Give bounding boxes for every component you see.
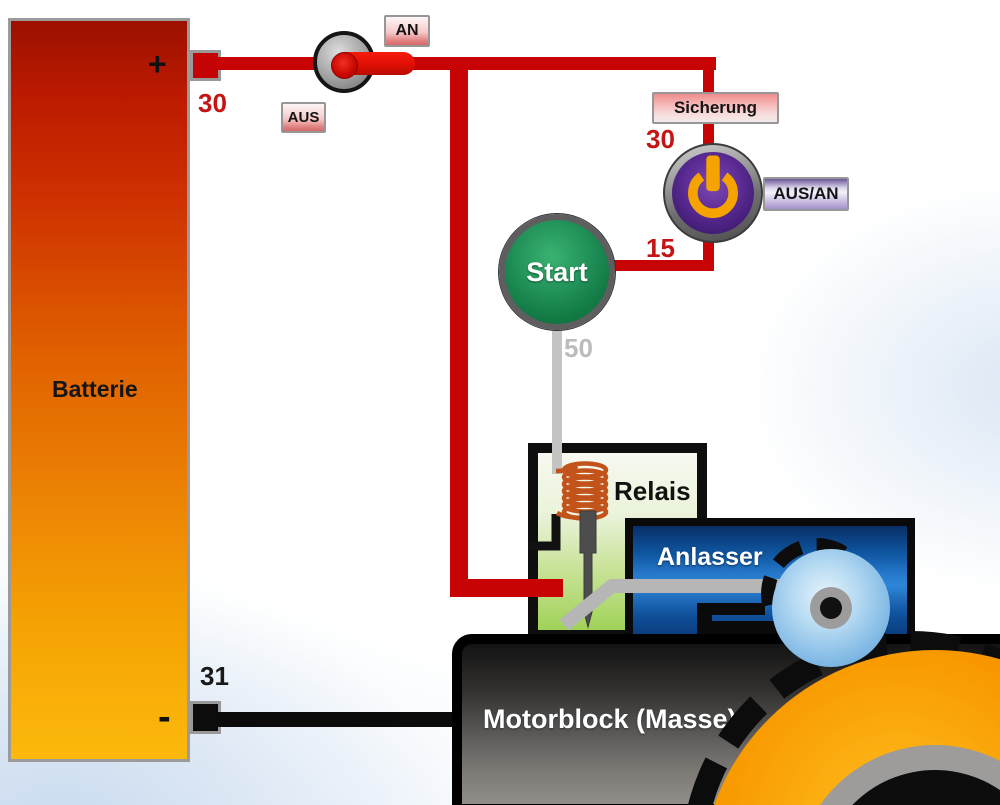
terminal-50: 50 [564,335,593,361]
switch-pivot [331,52,358,79]
start-button-label: Start [526,257,588,288]
terminal-31: 31 [200,663,229,689]
battery-plus-sign: + [148,48,167,80]
starter-circuit-diagram: + Batterie - Anlasser [0,0,1000,805]
ignition-state-text: AUS/AN [773,184,838,204]
start-button[interactable]: Start [499,214,615,330]
wire-ground-31 [218,712,460,727]
battery-plus-terminal [190,50,221,81]
terminal-15: 15 [646,235,675,261]
battery-label: Batterie [52,378,138,401]
switch-off-text: AUS [288,109,320,126]
battery-minus-sign: - [158,698,171,736]
engine-block-label: Motorblock (Masse) [483,706,737,733]
pinion-gear-hub [820,597,842,619]
fuse-label: Sicherung [652,92,779,124]
switch-on-text: AN [395,22,418,40]
relay-label: Relais [614,478,691,504]
wire-live-branch-vertical [450,68,468,582]
wire-live-branch-to-relay [450,579,563,597]
terminal-30-battery: 30 [198,90,227,116]
switch-on-label: AN [384,15,430,47]
wire-50-control [552,328,562,474]
terminal-30-fuse: 30 [646,126,675,152]
ignition-state-label: AUS/AN [763,177,849,211]
power-icon [665,145,761,241]
switch-off-label: AUS [281,102,326,133]
starter-label: Anlasser [657,545,763,570]
fuse-text: Sicherung [674,98,757,118]
battery-minus-terminal [190,701,221,734]
ignition-power-button[interactable] [663,143,763,243]
